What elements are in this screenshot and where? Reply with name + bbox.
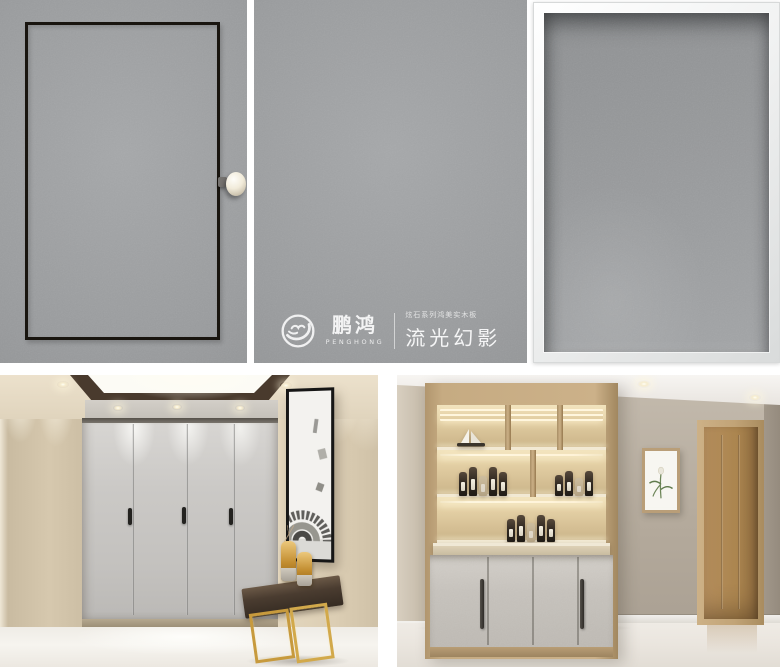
photo-wardrobe-hallway[interactable] <box>0 375 378 667</box>
bottle <box>479 476 487 496</box>
cabinet-countertop <box>433 543 610 555</box>
bottle-display-set <box>555 471 593 496</box>
product-collage: 鹏鸿 PENGHONG 炫石系列鸿美实木板 流光幻影 <box>0 0 780 667</box>
ceiling-spotlight <box>749 394 761 401</box>
door-handle <box>480 579 484 629</box>
bottle <box>469 467 477 496</box>
door-seam <box>577 557 579 645</box>
series-label: 炫石系列鸿美实木板 <box>405 310 477 320</box>
brand-name-block: 鹏鸿 PENGHONG <box>326 315 385 346</box>
right-wall-edge <box>764 375 780 627</box>
ceiling-spotlight <box>637 380 651 388</box>
door-handle <box>128 508 132 525</box>
grain-texture <box>254 0 527 363</box>
bottle <box>555 475 563 496</box>
bottle <box>489 467 497 496</box>
product-name: 流光幻影 <box>405 322 501 351</box>
door-handle <box>182 507 186 524</box>
interior-oak-door <box>704 427 758 619</box>
bottle <box>575 478 583 496</box>
shelf-divider <box>530 450 536 497</box>
shelf-divider <box>505 405 511 450</box>
grain-texture <box>430 555 613 647</box>
product-name-block: 炫石系列鸿美实木板 流光幻影 <box>405 310 501 351</box>
botanical-artwork <box>642 448 680 513</box>
bottle-display-set <box>459 467 507 496</box>
door-seam <box>186 424 188 615</box>
bottle-display-set <box>507 515 555 542</box>
display-cabinet <box>425 383 618 659</box>
bottle <box>499 472 507 496</box>
tile-panel-black-inlay[interactable] <box>0 0 247 363</box>
ceiling-spotlight <box>235 405 245 411</box>
abstract-arch-art <box>289 390 331 559</box>
door-floor-reflection <box>707 625 757 653</box>
door-handle <box>580 579 584 629</box>
bottle <box>547 519 555 542</box>
door-handle <box>229 508 233 525</box>
tile-panel-logo[interactable]: 鹏鸿 PENGHONG 炫石系列鸿美实木板 流光幻影 <box>254 0 527 363</box>
sailboat-model <box>453 427 489 449</box>
brand-name-en: PENGHONG <box>326 338 385 346</box>
door-seam <box>532 557 534 645</box>
ceiling-spotlight <box>57 381 69 388</box>
door-seam <box>132 424 134 615</box>
brand-name-cn: 鹏鸿 <box>332 315 378 336</box>
bottle <box>585 471 593 496</box>
gold-bottle <box>281 541 296 581</box>
bottle <box>565 471 573 496</box>
botanical-art <box>645 451 677 510</box>
brand-logo: 鹏鸿 PENGHONG 炫石系列鸿美实木板 流光幻影 <box>254 310 527 351</box>
photo-display-cabinet[interactable] <box>397 375 780 667</box>
bottle <box>459 472 467 496</box>
bottle <box>537 515 545 542</box>
ceiling-spotlight <box>113 405 123 411</box>
shelf-divider <box>557 405 563 450</box>
tile-panel-silver-frame[interactable] <box>533 2 780 363</box>
bottle <box>507 519 515 542</box>
ceiling-spotlight <box>172 404 182 410</box>
gold-bottle <box>297 552 312 586</box>
console-gold-leg <box>289 603 334 664</box>
black-inlay-frame <box>25 22 220 340</box>
door-knob <box>226 172 246 196</box>
door-groove <box>738 435 740 609</box>
grain-texture <box>544 13 769 352</box>
penghong-emblem-icon <box>280 313 316 349</box>
door-seam <box>233 424 235 615</box>
logo-divider <box>394 313 395 349</box>
left-wall-sliver <box>397 375 425 625</box>
framed-panel-surface <box>544 13 769 352</box>
cabinet-plinth <box>430 647 613 657</box>
bottle <box>527 523 535 542</box>
console-gold-leg <box>249 608 296 663</box>
door-groove <box>721 435 723 609</box>
cabinet-gray-doors <box>430 555 613 647</box>
door-seam <box>487 557 489 645</box>
bottle <box>517 515 525 542</box>
